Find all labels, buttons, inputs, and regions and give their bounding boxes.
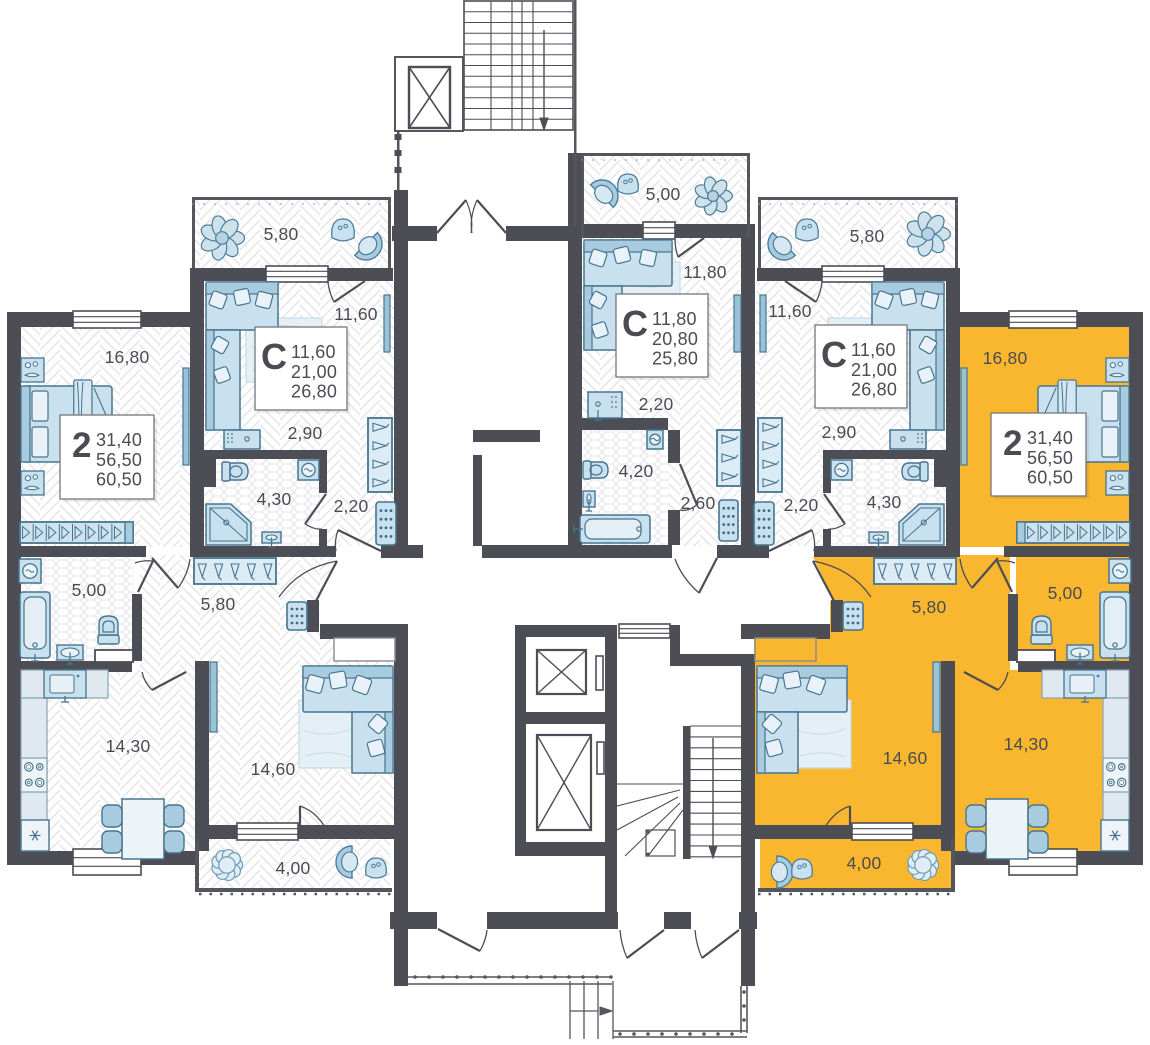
svg-text:С: С — [261, 336, 287, 377]
svg-text:5,00: 5,00 — [646, 184, 681, 204]
svg-text:11,60: 11,60 — [334, 304, 378, 324]
svg-text:С: С — [821, 334, 847, 375]
svg-text:56,50: 56,50 — [96, 450, 142, 470]
svg-text:11,80: 11,80 — [652, 309, 697, 329]
svg-text:4,30: 4,30 — [867, 492, 902, 512]
svg-text:21,00: 21,00 — [291, 362, 337, 382]
svg-text:60,50: 60,50 — [1027, 468, 1073, 488]
svg-text:56,50: 56,50 — [1027, 448, 1073, 468]
svg-text:5,80: 5,80 — [850, 226, 885, 246]
svg-text:5,80: 5,80 — [201, 594, 236, 614]
svg-text:11,80: 11,80 — [683, 262, 727, 282]
svg-text:2,20: 2,20 — [639, 394, 674, 414]
svg-text:5,00: 5,00 — [72, 580, 107, 600]
svg-text:2,90: 2,90 — [288, 423, 323, 443]
svg-text:31,40: 31,40 — [96, 430, 142, 450]
svg-text:11,60: 11,60 — [768, 301, 812, 321]
svg-text:14,60: 14,60 — [883, 748, 928, 768]
svg-text:25,80: 25,80 — [652, 349, 698, 369]
svg-text:14,60: 14,60 — [251, 759, 296, 779]
svg-text:5,00: 5,00 — [1048, 583, 1083, 603]
svg-text:4,30: 4,30 — [257, 489, 292, 509]
svg-text:2,90: 2,90 — [822, 422, 857, 442]
svg-text:4,00: 4,00 — [276, 858, 311, 878]
svg-text:26,80: 26,80 — [851, 380, 897, 400]
svg-text:14,30: 14,30 — [106, 736, 151, 756]
svg-text:26,80: 26,80 — [291, 382, 337, 402]
svg-text:16,80: 16,80 — [983, 348, 1028, 368]
svg-text:4,00: 4,00 — [847, 853, 882, 873]
svg-text:2,20: 2,20 — [334, 496, 369, 516]
svg-text:5,80: 5,80 — [264, 224, 299, 244]
svg-text:4,20: 4,20 — [619, 461, 654, 481]
svg-text:11,60: 11,60 — [291, 342, 336, 362]
svg-text:21,00: 21,00 — [851, 360, 897, 380]
svg-text:5,80: 5,80 — [912, 597, 947, 617]
svg-text:14,30: 14,30 — [1004, 734, 1049, 754]
svg-text:31,40: 31,40 — [1027, 428, 1073, 448]
svg-text:2: 2 — [1003, 424, 1022, 463]
svg-text:2: 2 — [72, 426, 91, 465]
svg-text:С: С — [622, 303, 648, 344]
svg-text:16,80: 16,80 — [105, 347, 150, 367]
svg-text:2,60: 2,60 — [681, 493, 716, 513]
svg-text:20,80: 20,80 — [652, 329, 698, 349]
svg-text:60,50: 60,50 — [96, 470, 142, 490]
svg-text:2,20: 2,20 — [784, 495, 819, 515]
svg-text:11,60: 11,60 — [851, 340, 896, 360]
